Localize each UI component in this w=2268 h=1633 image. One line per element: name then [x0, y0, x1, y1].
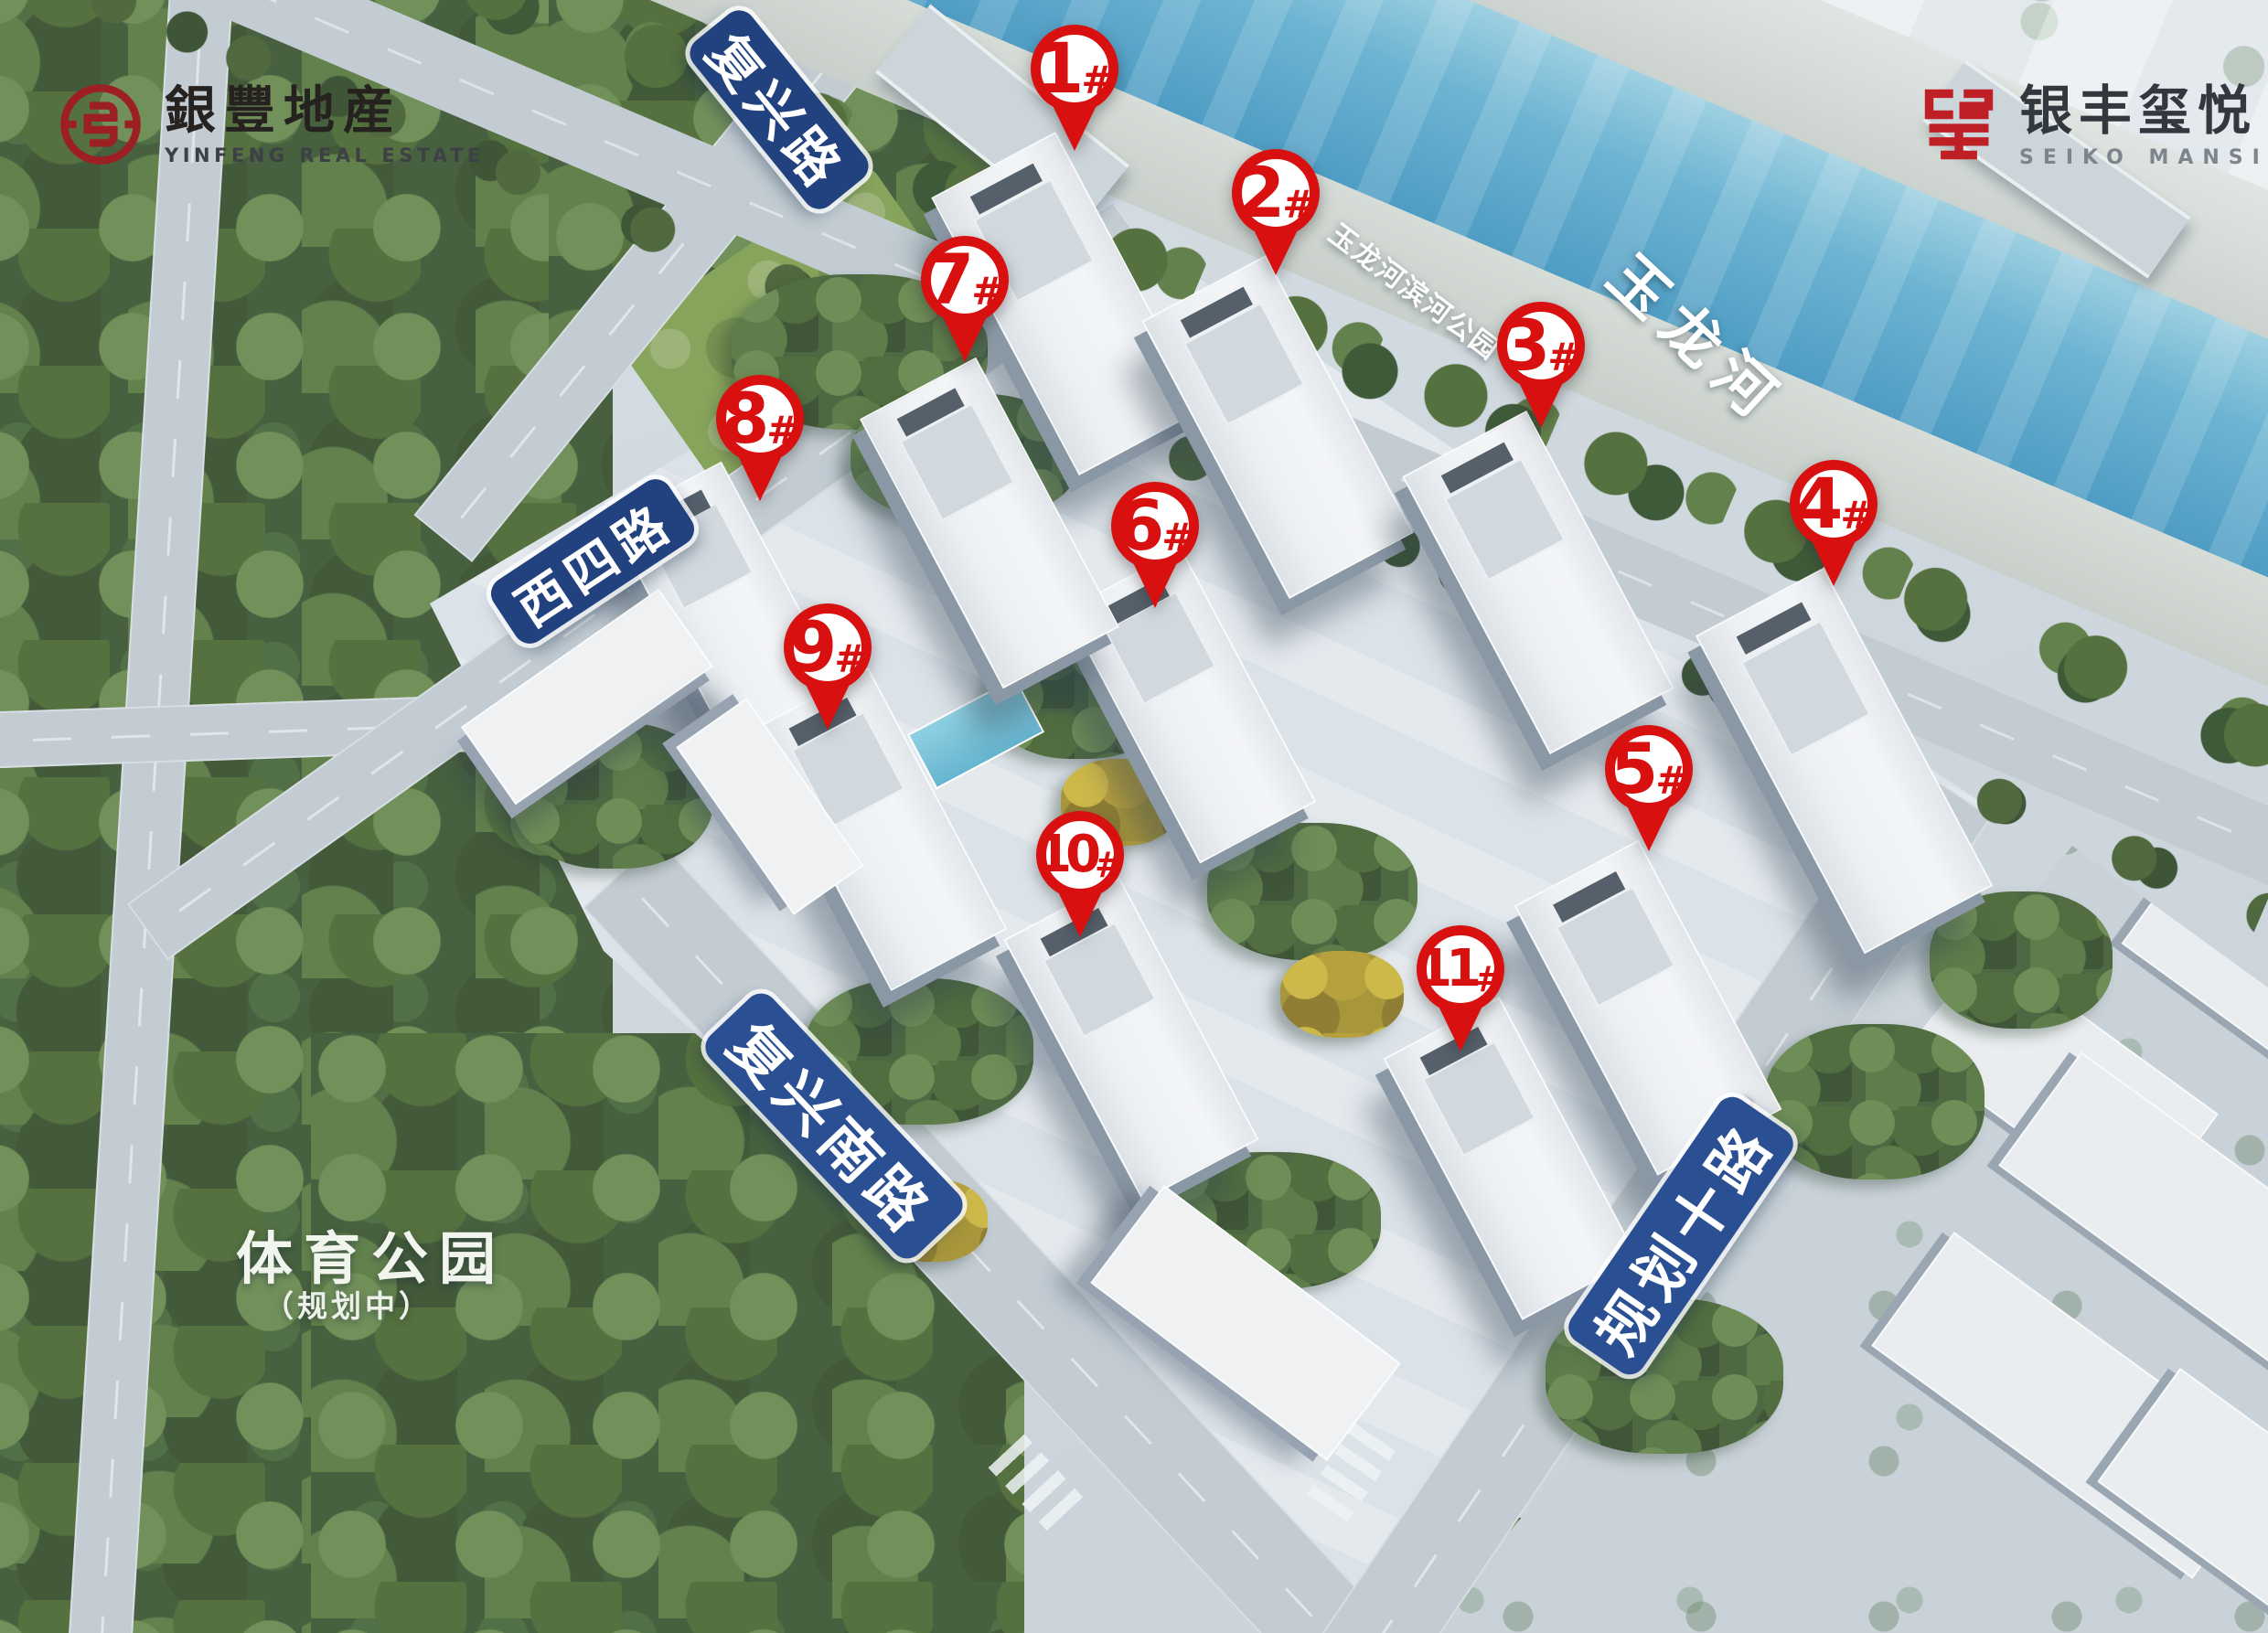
marker-circle: 4#	[1790, 460, 1878, 548]
building-marker-3[interactable]: 3#	[1497, 302, 1585, 430]
tree-grove	[1930, 891, 2113, 1029]
sports-park-status-text: （规划中）	[263, 1288, 433, 1324]
sports-park-status-label: （规划中）	[263, 1282, 433, 1326]
marker-circle: 5#	[1605, 725, 1693, 813]
building-marker-6[interactable]: 6#	[1111, 482, 1199, 610]
building-marker-5[interactable]: 5#	[1605, 725, 1693, 853]
marker-hash: #	[1547, 338, 1579, 377]
building-marker-4[interactable]: 4#	[1790, 460, 1878, 588]
marker-number: 2	[1236, 158, 1282, 228]
seiko-mansion-logo: 银丰玺悦 SEIKO MANSION	[1919, 84, 2268, 169]
yinfeng-seal-icon	[57, 80, 144, 172]
marker-circle: 9#	[784, 603, 872, 691]
marker-hash: #	[766, 411, 798, 450]
marker-circle: 6#	[1111, 482, 1199, 570]
marker-circle: 10#	[1036, 811, 1124, 899]
marker-number: 10	[1036, 829, 1095, 881]
seiko-mansion-mark-icon	[1919, 85, 1999, 169]
marker-hash: #	[1095, 848, 1124, 882]
marker-circle: 3#	[1497, 302, 1585, 390]
marker-number: 4	[1794, 469, 1840, 539]
marker-circle: 1#	[1031, 25, 1118, 112]
marker-number: 11	[1417, 944, 1475, 995]
marker-number: 5	[1610, 734, 1655, 804]
yinfeng-brand-name-cn: 銀豐地産	[165, 86, 485, 137]
tree-grove	[1765, 1024, 1984, 1179]
marker-number: 1	[1035, 34, 1081, 103]
marker-hash: #	[1282, 186, 1314, 224]
marker-number: 3	[1502, 311, 1547, 380]
building-marker-8[interactable]: 8#	[716, 375, 804, 503]
marker-hash: #	[1081, 61, 1113, 100]
marker-hash: #	[834, 640, 866, 678]
aerial-site-plan: 复兴路 西四路 复兴南路 规划十路 玉龙河滨河公园 玉龙河 体育公园 （规划中）…	[0, 0, 2268, 1633]
building-marker-11[interactable]: 11#	[1417, 925, 1504, 1053]
seiko-mansion-name-cn: 银丰玺悦	[2019, 84, 2268, 137]
marker-hash: #	[1475, 962, 1504, 997]
marker-number: 7	[925, 245, 971, 315]
marker-hash: #	[1161, 518, 1193, 557]
marker-circle: 8#	[716, 375, 804, 463]
marker-number: 9	[788, 613, 834, 682]
marker-circle: 11#	[1417, 925, 1504, 1013]
marker-hash: #	[1655, 762, 1687, 800]
marker-hash: #	[1840, 496, 1872, 535]
seiko-mansion-name-en: SEIKO MANSION	[2019, 146, 2268, 169]
marker-circle: 2#	[1232, 149, 1320, 237]
building-marker-7[interactable]: 7#	[921, 236, 1009, 364]
marker-number: 8	[721, 384, 766, 454]
marker-circle: 7#	[921, 236, 1009, 324]
golden-tree-grove	[1280, 951, 1404, 1038]
building-marker-2[interactable]: 2#	[1232, 149, 1320, 277]
yinfeng-brand-logo: 銀豐地産 YINFENG REAL ESTATE	[57, 80, 485, 172]
marker-hash: #	[971, 272, 1003, 311]
building-marker-1[interactable]: 1#	[1031, 25, 1118, 153]
marker-number: 6	[1116, 491, 1161, 560]
yinfeng-brand-name-en: YINFENG REAL ESTATE	[165, 144, 485, 166]
building-marker-10[interactable]: 10#	[1036, 811, 1124, 939]
building-marker-9[interactable]: 9#	[784, 603, 872, 731]
tree-grove	[1207, 823, 1417, 960]
